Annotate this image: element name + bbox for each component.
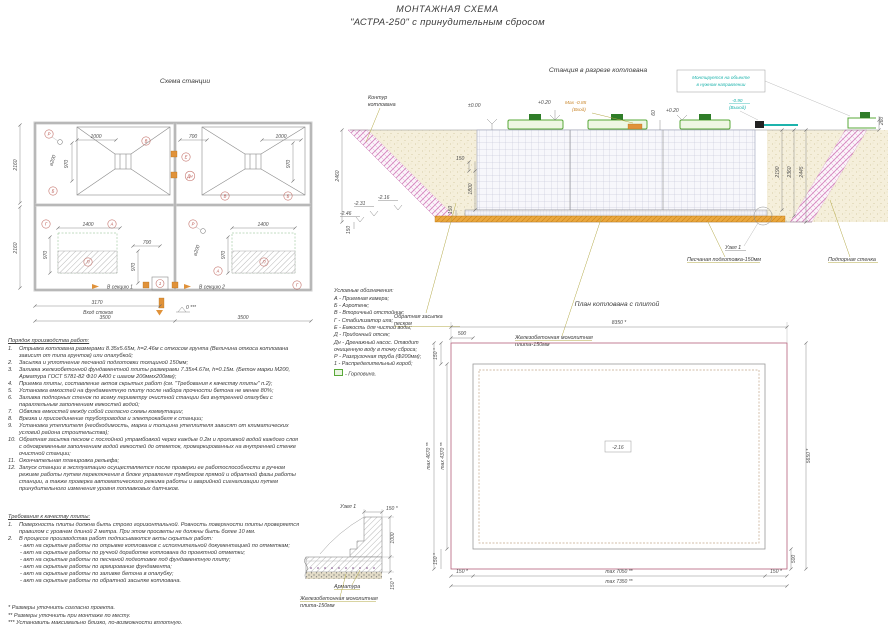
pad-right [232,233,295,273]
act-item: - акт на скрытые работы по заливке бетон… [20,571,302,578]
dim-970-br: 970 [221,251,227,260]
dim-4670: max 4670 ** [426,441,432,469]
legend: Условные обозначения: А - Приемная камер… [334,288,479,379]
dim-1400-right: 1400 [257,222,268,228]
label-one: 1 [159,281,161,286]
sand-bed [435,216,785,222]
page-subtitle: "АСТРА-250" с принудительным сбросом [0,17,895,28]
station-plan: Схема станции Р [0,55,330,340]
dim-2190: 2190 [775,166,781,178]
dim-1000-right: 1000 [275,134,286,140]
dim-150-a: 150 [456,156,465,162]
node-detail: Узел 1 150 * 1000 150 * Арматура Железоб… [298,494,488,629]
plan-dimensions: 1000 970 ⌀200 700 1000 970 2160 2160 140… [13,123,313,322]
label-G2: Г [296,283,299,288]
dim-dia200-tl: ⌀200 [48,154,57,167]
section-title: Станция в разрезе котлована [549,67,647,74]
contour-label-2: котлована [368,102,396,108]
list-item: 1.Отрывка котлована размерами 8.35х5.65м… [8,346,302,360]
dim-260: 260 [879,117,885,127]
level-020-a: +0.20 [538,100,551,106]
pit-plan: План котлована с плитой -2.16 8350 * 500… [425,292,895,602]
work-order: Порядок производства работ: 1.Отрывка ко… [8,338,302,493]
dim-2160-top: 2160 [13,159,19,171]
label-P2: Р [192,222,195,227]
requirements-title: Требования к качеству плиты: [8,514,302,521]
level-maxin-2: (Вход) [572,107,586,113]
backfill-left [368,130,477,222]
dim-8350: 8350 * [612,320,628,326]
slab-section [306,557,382,572]
level-zero-plan: 0 *** [186,305,197,311]
dim-60: 60 [651,110,657,116]
act-item: - акт на скрытые работы по отрывке котло… [20,543,302,550]
neck-hatch-swatch [334,369,343,376]
divider-fitting-bottom [171,172,177,178]
station-footprint [479,370,759,543]
retaining-wall-section [350,517,382,557]
dim-970-tl: 970 [64,160,70,169]
dim-700-top: 700 [189,134,198,140]
footnote-3: *** Установить максимально близко, по-во… [8,620,308,628]
dim-2160-bot: 2160 [13,242,19,254]
level-020-b: +0.20 [666,108,679,114]
dim-2460: 2460 [335,170,341,182]
dim-1400-left: 1400 [82,222,93,228]
rebar-label: Арматура [333,584,360,590]
outlet-stub [848,112,876,128]
dim-3170: 3170 [91,300,102,306]
list-item: 5.Установка емкостей на фундаментную пли… [8,388,302,395]
note-line1: Монтируется на объекте [692,75,750,80]
list-item: 1.Поверхность плиты должна быть строго г… [8,522,302,536]
list-item: 12.Запуск станции в эксплуатацию осущест… [8,465,302,493]
level-maxin-1: Max -0.85 [565,100,587,106]
legend-item-D: Д - Придонный отсек; [334,332,479,339]
legend-item-1: 1 - Распределительный короб; [334,361,479,368]
dim-3500-right: 3500 [237,315,248,321]
contour-label-1: Контур [368,95,387,101]
drawing-header: МОНТАЖНАЯ СХЕМА "АСТРА-250" с принудител… [0,4,895,28]
sandbed-label: Песчаная подготовка-150мм [687,257,761,263]
list-item: 7.Обвязка емкостей между собой согласно … [8,409,302,416]
cover-1 [508,120,563,129]
pit-top-outline [451,343,787,569]
gravel-strip [306,572,382,579]
divider-fitting-top [171,151,177,157]
label-A2: А [216,269,220,274]
retaining-wall-label: Подпорная стенка [828,257,876,263]
label-V: В [145,139,148,144]
level-m231: -2.31 [354,201,366,207]
pit-plan-title: План котлована с плитой [575,300,660,308]
act-item: - акт на скрытые работы по армирование ф… [20,564,302,571]
act-item: - акт на скрытые работы по обратной засы… [20,578,302,585]
dim-5650: 5650 * [806,448,812,464]
station-body [477,130,755,210]
list-item: 11.Окончательная планировка рельефа; [8,458,302,465]
slab-outline [473,364,765,549]
label-B: Б [52,189,55,194]
legend-item-Dn-1: Дн - Дренажный насос. Отводит [334,340,479,347]
dim-7350: max 7350 ** [605,579,633,585]
node-dim-150-top: 150 * [386,506,399,512]
dim-150-bot-r: 150 * [770,569,783,575]
legend-item-V: В - Вторичный отстойник; [334,310,479,317]
slab-requirements: Требования к качеству плиты: 1.Поверхнос… [8,514,302,585]
dim-4370: max 4370 ** [440,441,446,469]
node-title: Узел 1 [339,504,356,510]
level-out-1: -0.90 [732,98,743,103]
pit-body [348,130,888,222]
legend-item-G: Г - Стабилизатор ила; [334,318,479,325]
dim-970-tr: 970 [286,160,292,169]
node-dim-150-bot: 150 * [390,577,396,590]
node-drawing [305,517,383,579]
note-box: Монтируется на объекте в нужном направле… [677,70,850,116]
cover-3 [680,120,730,129]
legend-item-A: А - Приемная камера; [334,296,479,303]
label-V2: В [224,194,227,199]
plan-title: Схема станции [160,78,210,85]
work-order-title: Порядок производства работ: [8,338,302,345]
note-line2: в нужном направлении [697,82,746,87]
dim-2360: 2360 [787,166,793,178]
label-E: Е [185,155,188,160]
level-out-2: (Выход) [729,105,746,110]
inlet-fitting [628,124,642,129]
to-section-2: В секцию 2 [199,285,225,291]
inflow-label: Вход стоков [83,310,113,316]
to-section-1: В секцию 1 [107,285,133,291]
dim-1800: 1800 [468,183,474,194]
node-slab-label-1: Железобетонная монолитная [299,596,378,602]
footnote-1: * Размеры уточнить согласно проекта. [8,605,308,613]
dim-700-bot: 700 [143,240,152,246]
pit-bottom-level: -2.16 [612,445,624,451]
list-item: 2.В процессе производства работ подписыв… [8,536,302,543]
act-item: - акт на скрытые работы по песчаной подг… [20,557,302,564]
pad-left [58,233,117,273]
dim-500-right: 500 [791,555,797,564]
dim-2445: 2445 [799,166,805,178]
outlet-fitting [755,121,764,128]
dim-150-c: 150 [346,226,352,235]
dim-1000-left: 1000 [90,134,101,140]
act-item: - акт на скрытые работы по ручной дорабо… [20,550,302,557]
dim-970-bm: 970 [131,263,137,272]
covers [508,112,876,129]
level-m246: -2.46 [340,211,352,217]
inflow-arrow [156,310,163,316]
dim-970-bl: 970 [43,251,49,260]
label-Dn: Дн [186,174,193,179]
label-A: А [110,222,114,227]
dim-dia200-br: ⌀200 [192,244,201,257]
legend-item-Dn-2: очищенную воду в точку сброса; [334,347,479,354]
list-item: 2.Засыпка и уплотнение песчаной подготов… [8,360,302,367]
list-item: 3.Заливка железобетонной фундаментной пл… [8,367,302,381]
list-item: 8.Врезка и присоединение трубопроводов и… [8,416,302,423]
page-title: МОНТАЖНАЯ СХЕМА [0,4,895,14]
level-m216: -2.16 [378,195,390,201]
legend-item-neck: - Горловина. [334,369,479,379]
pit-plan-rects: -2.16 [451,343,787,569]
list-item: 4.Приемка плиты, составление актов скрыт… [8,381,302,388]
footnote-2: ** Размеры уточнить при монтаже по месту… [8,613,308,621]
label-G: Г [45,222,48,227]
foundation-slab [465,210,767,216]
label-P: Р [48,132,51,137]
label-B2: Б [287,194,290,199]
level-zero: ±0.00 [468,103,481,109]
dim-7050: max 7050 ** [605,569,633,575]
node-dim-1000: 1000 [390,532,396,543]
list-item: 6.Заливка подпорных стенок по всему пери… [8,395,302,409]
list-item: 9.Установка утеплителя (необходимость, м… [8,423,302,437]
node-callout-label: Узел 1 [724,245,741,251]
legend-title: Условные обозначения: [334,288,479,295]
footnotes: * Размеры уточнить согласно проекта. ** … [8,605,308,628]
list-item: 10.Обратная засыпка песком с послойной у… [8,437,302,458]
